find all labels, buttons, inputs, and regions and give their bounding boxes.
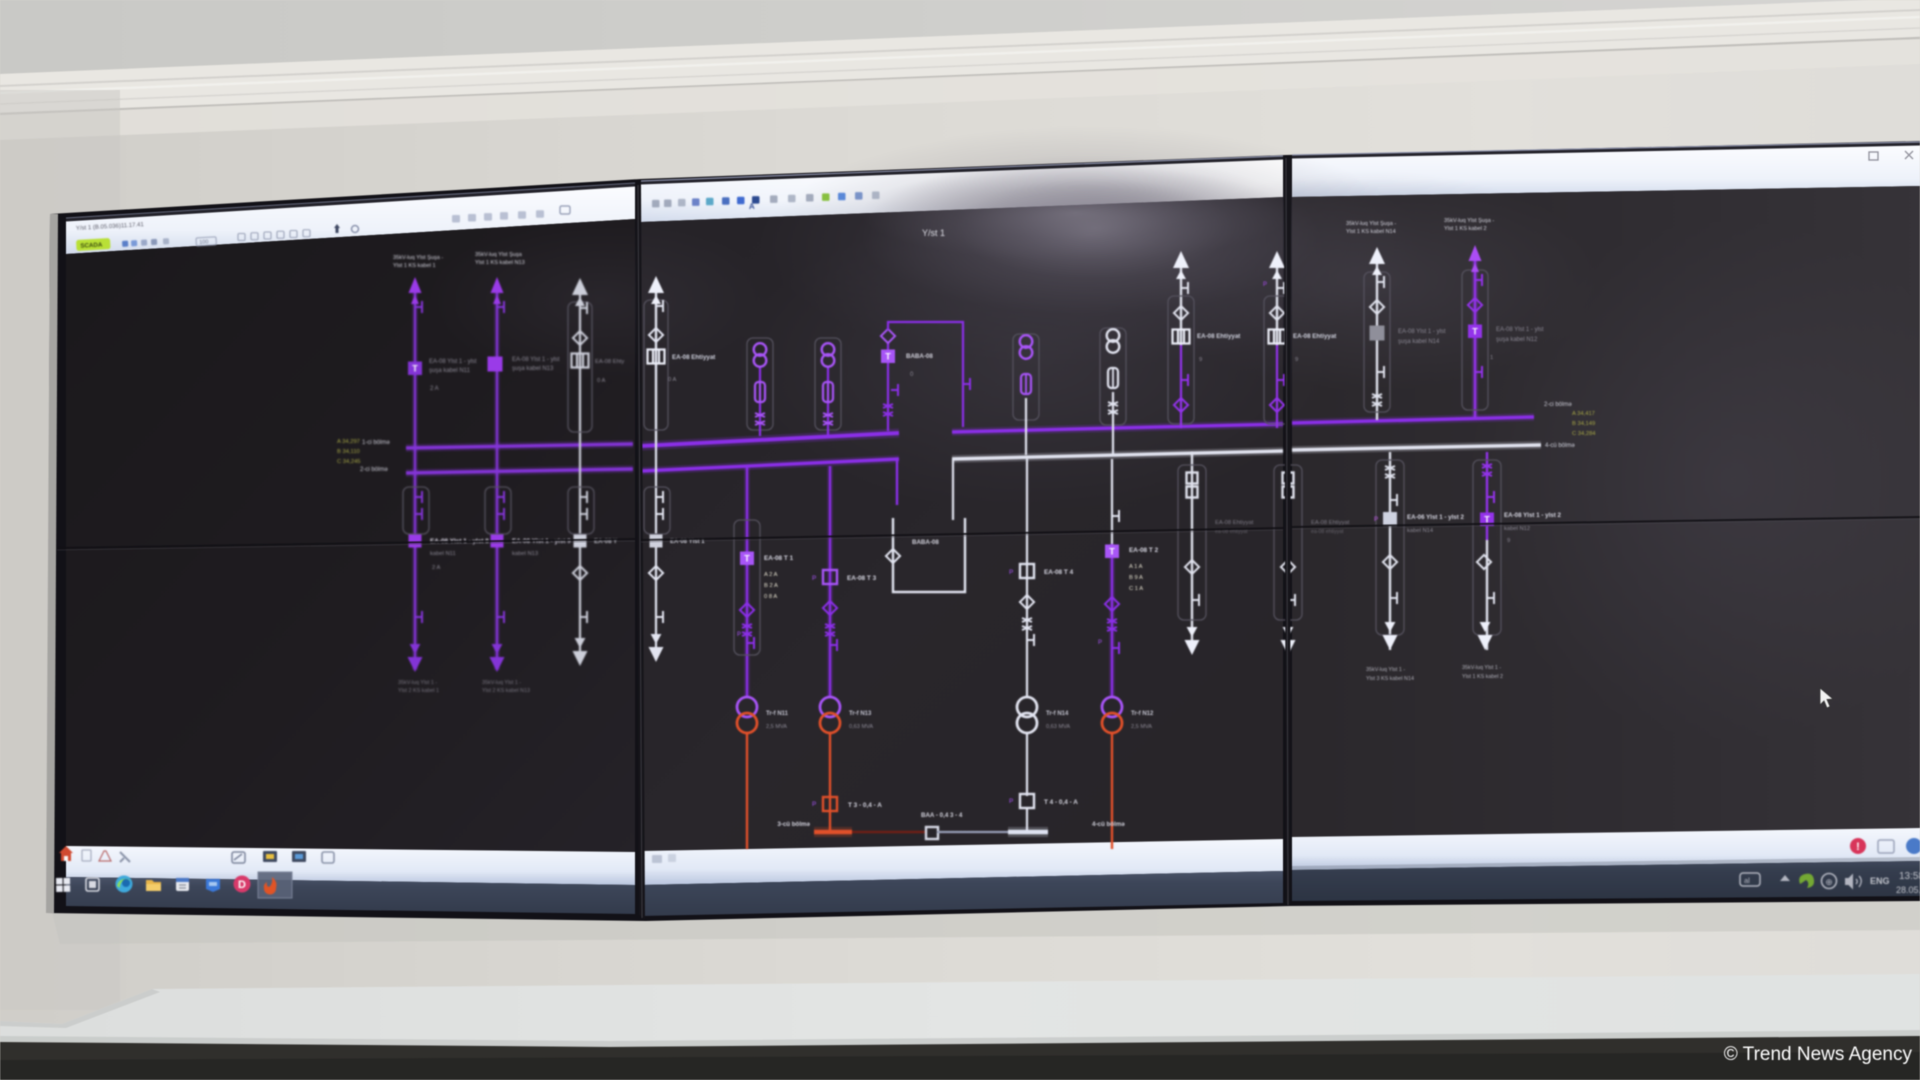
svg-text:35kV-luq Ylst 1 -: 35kV-luq Ylst 1 - <box>1462 665 1501 671</box>
svg-text:35kV-luq Ylst Şuşa: 35kV-luq Ylst Şuşa <box>475 252 523 258</box>
svg-text:C 1 A: C 1 A <box>1129 586 1143 592</box>
svg-text:EA-08 Ylst 1 - ylst 2: EA-08 Ylst 1 - ylst 2 <box>1504 512 1562 519</box>
svg-text:P: P <box>1374 516 1378 523</box>
svg-text:T 4 - 0,4 - A: T 4 - 0,4 - A <box>1044 799 1078 806</box>
svg-text:P: P <box>1098 640 1102 646</box>
svg-text:Tr-f N12: Tr-f N12 <box>1131 711 1154 717</box>
svg-text:EA-08 Ylst 1 - ylst: EA-08 Ylst 1 - ylst <box>1398 329 1446 335</box>
svg-text:9: 9 <box>1199 357 1202 363</box>
svg-text:2 A: 2 A <box>432 565 441 571</box>
svg-text:EA-08 Ehty: EA-08 Ehty <box>595 359 624 365</box>
svg-text:BABA-08: BABA-08 <box>912 539 939 546</box>
svg-text:2,5 MVA: 2,5 MVA <box>1131 724 1152 730</box>
svg-text:P: P <box>1009 569 1013 576</box>
svg-text:9: 9 <box>1295 357 1298 363</box>
svg-text:P: P <box>1009 798 1013 805</box>
svg-text:T: T <box>412 364 418 374</box>
svg-text:BABA-08: BABA-08 <box>906 353 933 360</box>
svg-text:kabel N11: kabel N11 <box>430 551 456 557</box>
svg-text:Ylst 1 KS kabel N14: Ylst 1 KS kabel N14 <box>1346 229 1396 235</box>
svg-text:EA-08 Ylst 1 - ylst: EA-08 Ylst 1 - ylst <box>429 359 477 365</box>
svg-text:EA-08 T 1: EA-08 T 1 <box>764 555 794 562</box>
svg-text:T: T <box>885 352 891 362</box>
svg-text:A 2 A: A 2 A <box>764 572 778 578</box>
svg-text:Y/st 1: Y/st 1 <box>922 228 945 238</box>
svg-text:B 34,110: B 34,110 <box>337 449 360 455</box>
svg-text:EA-08 T 3: EA-08 T 3 <box>847 575 877 582</box>
svg-text:EA-08 Ehtiyyat: EA-08 Ehtiyyat <box>672 354 715 361</box>
svg-text:35kV-luq Ylst Şuşa -: 35kV-luq Ylst Şuşa - <box>1444 218 1494 224</box>
svg-text:Ylst 1 KS kabel 2: Ylst 1 KS kabel 2 <box>1462 674 1503 680</box>
svg-text:0,63 MVA: 0,63 MVA <box>849 724 873 730</box>
svg-text:A 34,417: A 34,417 <box>1572 411 1595 417</box>
svg-text:1: 1 <box>1490 355 1493 361</box>
svg-text:100: 100 <box>199 239 209 246</box>
svg-text:Ylst 1 KS kabel N13: Ylst 1 KS kabel N13 <box>475 260 525 266</box>
svg-text:2-ci bölmə: 2-ci bölmə <box>360 467 388 473</box>
svg-text:0 A: 0 A <box>597 378 606 384</box>
svg-text:D: D <box>238 879 246 891</box>
svg-text:EA-08 Ylst 1 - ylst: EA-08 Ylst 1 - ylst <box>1496 327 1544 333</box>
svg-text:SCADA: SCADA <box>80 241 103 249</box>
svg-text:T 3 - 0,4 - A: T 3 - 0,4 - A <box>848 802 882 809</box>
svg-text:BAA - 0,4 3 - 4: BAA - 0,4 3 - 4 <box>921 812 963 819</box>
svg-text:P: P <box>812 801 816 808</box>
svg-text:A 1 A: A 1 A <box>1129 564 1143 570</box>
svg-text:B 2 A: B 2 A <box>764 583 778 589</box>
svg-text:4-cü bölmə: 4-cü bölmə <box>1092 821 1125 828</box>
svg-text:kabel N13: kabel N13 <box>512 551 538 557</box>
svg-text:0 A: 0 A <box>668 377 677 383</box>
svg-text:şuşa kabel N11: şuşa kabel N11 <box>429 368 471 374</box>
svg-text:35kV-luq Ylst Şuşa -: 35kV-luq Ylst Şuşa - <box>1346 221 1396 227</box>
svg-text:35kV-luq Ylst Şuşa -: 35kV-luq Ylst Şuşa - <box>393 255 443 261</box>
svg-text:EA-08 Ehtiyyat: EA-08 Ehtiyyat <box>1311 520 1350 526</box>
svg-text:P: P <box>1263 282 1267 288</box>
svg-text:P: P <box>737 632 741 638</box>
svg-text:Ylst 1 KS kabel 2: Ylst 1 KS kabel 2 <box>1444 226 1487 232</box>
svg-text:T: T <box>1109 547 1115 557</box>
svg-text:EA-08 Ehtiyyat: EA-08 Ehtiyyat <box>1197 333 1240 340</box>
svg-text:kabel N12: kabel N12 <box>1504 526 1530 532</box>
svg-text:Tr-f N14: Tr-f N14 <box>1046 711 1069 717</box>
svg-text:3-cü bölmə: 3-cü bölmə <box>777 821 810 828</box>
svg-text:ea-08 ehtiyyat: ea-08 ehtiyyat <box>1311 529 1344 535</box>
svg-text:0 8 A: 0 8 A <box>764 594 777 600</box>
svg-text:kabel N14: kabel N14 <box>1407 528 1434 534</box>
svg-text:35kV-luq Ylst 1 -: 35kV-luq Ylst 1 - <box>482 680 521 686</box>
svg-text:T: T <box>744 554 750 564</box>
svg-text:EA-08 Ylst 1 - ylst: EA-08 Ylst 1 - ylst <box>512 357 560 363</box>
svg-text:Ylst 3 KS kabel N14: Ylst 3 KS kabel N14 <box>1366 676 1414 682</box>
svg-text:T: T <box>1472 327 1478 337</box>
svg-text:EA-08 T 2: EA-08 T 2 <box>1129 547 1159 554</box>
svg-text:2-ci bölmə: 2-ci bölmə <box>1544 402 1572 408</box>
svg-text:A 34,297: A 34,297 <box>337 439 360 445</box>
svg-text:2,5 MVA: 2,5 MVA <box>766 724 787 730</box>
svg-text:4-cü bölmə: 4-cü bölmə <box>1545 443 1575 449</box>
svg-text:Tr-f N13: Tr-f N13 <box>849 711 872 717</box>
svg-text:35kV-luq Ylst 1 -: 35kV-luq Ylst 1 - <box>1366 667 1405 673</box>
svg-text:9: 9 <box>1507 538 1510 544</box>
svg-text:1-ci bölmə: 1-ci bölmə <box>362 440 390 446</box>
svg-text:EA-06 Ylst 1 - ylst 2: EA-06 Ylst 1 - ylst 2 <box>1407 514 1465 521</box>
svg-text:35kV-luq Ylst 1 -: 35kV-luq Ylst 1 - <box>398 680 437 686</box>
svg-text:© Trend News Agency: © Trend News Agency <box>1724 1044 1913 1065</box>
svg-text:B 9 A: B 9 A <box>1129 575 1143 581</box>
svg-text:şuşa kabel N12: şuşa kabel N12 <box>1496 337 1538 343</box>
svg-text:0,63 MVA: 0,63 MVA <box>1046 724 1070 730</box>
svg-text:EA-08 Ehtiyyat: EA-08 Ehtiyyat <box>1293 333 1336 340</box>
svg-text:Ylst 2 KS kabel 1: Ylst 2 KS kabel 1 <box>398 688 439 694</box>
svg-text:C 34,284: C 34,284 <box>1572 431 1596 437</box>
svg-text:A: A <box>749 202 755 211</box>
svg-text:2 A: 2 A <box>430 386 439 392</box>
svg-text:Ylst 1 KS kabel 1: Ylst 1 KS kabel 1 <box>393 263 436 269</box>
svg-text:Tr-f N11: Tr-f N11 <box>766 711 789 717</box>
svg-text:B 34,149: B 34,149 <box>1572 421 1595 427</box>
svg-text:Ylst 2 KS kabel N13: Ylst 2 KS kabel N13 <box>482 688 530 694</box>
svg-text:!: ! <box>1856 841 1860 853</box>
svg-text:EA-08 T 4: EA-08 T 4 <box>1044 569 1074 576</box>
svg-text:şuşa kabel N13: şuşa kabel N13 <box>512 366 554 372</box>
svg-text:P: P <box>812 575 816 582</box>
svg-text:EA-08 Ehtiyyat: EA-08 Ehtiyyat <box>1215 520 1254 526</box>
svg-text:C 34,245: C 34,245 <box>337 459 361 465</box>
svg-text:şuşa kabel N14: şuşa kabel N14 <box>1398 339 1440 345</box>
